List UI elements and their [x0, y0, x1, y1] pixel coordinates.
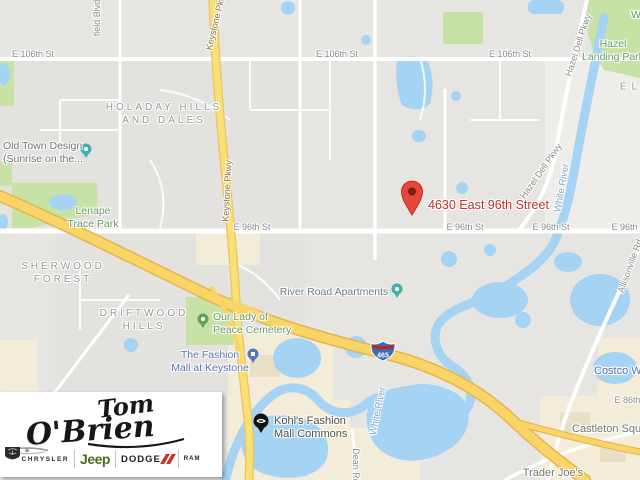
- dodge-logo: DODGE: [121, 454, 173, 465]
- street-label-dean-rd: Dean Rd: [351, 448, 361, 480]
- park-label-hazel-landing[interactable]: Hazel Landing Park: [582, 38, 640, 64]
- jeep-wordmark: Jeep: [80, 451, 110, 467]
- street-label-field-blvd: field Blvd: [92, 0, 102, 36]
- brand-logos-row: CHRYSLER Jeep DODGE: [4, 446, 218, 472]
- map-screenshot: 465: [0, 0, 640, 480]
- svg-text:465: 465: [377, 353, 389, 360]
- park-label-corner-partial: W: [631, 9, 640, 21]
- neighborhood-holaday-hills: Holaday Hills and Dales: [106, 101, 222, 127]
- neighborhood-sherwood-forest: Sherwood Forest: [21, 260, 105, 286]
- destination-address-label[interactable]: 4630 East 96th Street: [428, 198, 549, 212]
- street-label-e106th-2: E 106th St: [316, 49, 358, 59]
- dodge-wordmark: DODGE: [121, 454, 161, 465]
- poi-label-trader-joes[interactable]: Trader Joe's: [523, 467, 583, 479]
- street-label-e96th-2: E 96th St: [446, 222, 483, 232]
- dealer-logo-card: Tom O'Brien CHRYSLER Jeep DODGE: [0, 392, 222, 477]
- neighborhood-el-partial: EL: [620, 82, 640, 93]
- ram-wordmark: RAM: [184, 456, 201, 462]
- park-label-lenape-trace[interactable]: Lenape Trace Park: [68, 205, 119, 231]
- dealer-script-logo: Tom O'Brien: [0, 392, 222, 450]
- brand-divider: [74, 450, 75, 468]
- chrysler-logo: CHRYSLER: [22, 456, 70, 463]
- brand-divider: [178, 450, 179, 468]
- park-label-our-lady-cemetery[interactable]: Our Lady of Peace Cemetery: [213, 311, 291, 337]
- neighborhood-driftwood-hills: Driftwood Hills: [100, 307, 189, 333]
- street-label-e106th-3: E 106th St: [489, 49, 531, 59]
- poi-label-costco[interactable]: Costco Wholesale: [594, 365, 640, 377]
- ram-head-icon: [4, 446, 21, 460]
- brand-divider: [115, 450, 116, 468]
- poi-label-river-road-apartments[interactable]: River Road Apartments: [280, 286, 389, 298]
- street-label-e86th: E 86th St: [614, 395, 640, 405]
- street-label-e96th-4: E 96th St: [611, 222, 640, 232]
- poi-label-kohls[interactable]: Kohl's Fashion Mall Commons: [274, 415, 347, 441]
- poi-label-castleton-square[interactable]: Castleton Square: [572, 423, 640, 435]
- poi-label-fashion-mall[interactable]: The Fashion Mall at Keystone: [171, 349, 249, 375]
- street-label-e96th-1: E 96th St: [233, 222, 270, 232]
- poi-label-old-town-design[interactable]: Old Town Design (Sunrise on the...: [3, 140, 83, 166]
- street-label-e106th-1: E 106th St: [12, 49, 54, 59]
- chrysler-wordmark: CHRYSLER: [22, 456, 70, 463]
- street-label-e96th-3: E 96th St: [532, 222, 569, 232]
- ram-logo: RAM: [184, 456, 201, 462]
